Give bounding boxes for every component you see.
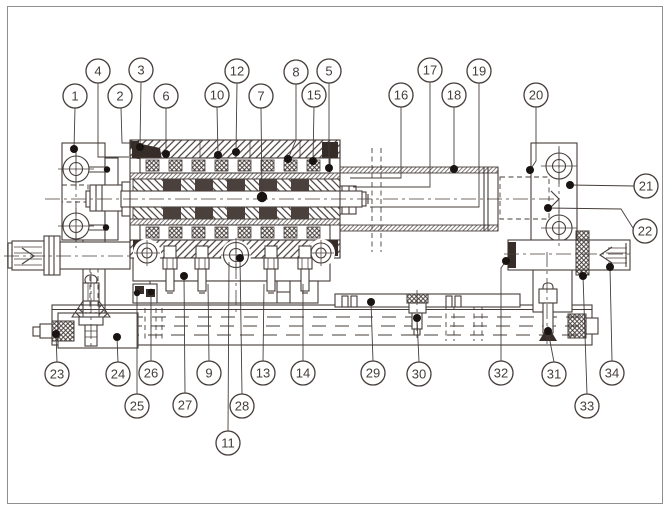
balloon-number-23: 23 (50, 367, 64, 382)
balloon-number-32: 32 (494, 366, 508, 381)
balloon-number-14: 14 (296, 366, 310, 381)
leader-dot-26 (148, 289, 154, 295)
balloon-number-29: 29 (366, 366, 380, 381)
rod-nut-left (90, 185, 122, 211)
leader-dot-31 (544, 327, 552, 335)
leader-dot-8 (284, 155, 292, 163)
balloon-number-5: 5 (325, 64, 332, 79)
balloon-number-13: 13 (256, 366, 270, 381)
leader-dot-30 (413, 314, 421, 322)
leader-dot-21 (566, 181, 574, 189)
balloon-number-1: 1 (71, 89, 78, 104)
leader-dot-18 (450, 165, 458, 173)
magnet-row-top (140, 158, 330, 173)
balloon-number-16: 16 (394, 88, 408, 103)
leader-dot-32 (502, 257, 510, 265)
seal-top-right (322, 142, 338, 158)
leader-dot-15 (309, 157, 317, 165)
balloon-number-15: 15 (307, 88, 321, 103)
leader-dot-24 (113, 333, 121, 341)
balloon-number-18: 18 (447, 88, 461, 103)
balloon-number-26: 26 (144, 366, 158, 381)
leader-dot-23 (52, 330, 60, 338)
leader-dot-12 (232, 148, 240, 156)
balloon-number-11: 11 (221, 436, 235, 451)
balloon-number-6: 6 (162, 89, 169, 104)
leader-dot-27 (180, 272, 188, 280)
balloon-number-24: 24 (111, 367, 125, 382)
leader-dot-5 (325, 164, 333, 172)
balloon-number-33: 33 (580, 399, 594, 414)
balloon-number-28: 28 (235, 399, 249, 414)
balloon-number-12: 12 (230, 64, 244, 79)
magnet-row-bottom (140, 225, 330, 240)
balloon-number-20: 20 (529, 88, 543, 103)
balloon-number-10: 10 (210, 88, 224, 103)
cylinder-body (121, 140, 362, 303)
balloon-number-25: 25 (130, 399, 144, 414)
balloon-number-30: 30 (412, 367, 426, 382)
leader-dot-1 (70, 145, 78, 153)
balloon-number-8: 8 (292, 65, 299, 80)
balloon-number-34: 34 (605, 366, 619, 381)
leader-dot-20 (526, 166, 534, 174)
balloon-number-7: 7 (257, 89, 264, 104)
balloon-number-19: 19 (472, 64, 486, 79)
leader-dot-6 (162, 150, 170, 158)
leader-dot-3 (136, 143, 144, 151)
leader-dot-10 (214, 151, 222, 159)
assembly-drawing-page: 1423610127815516171819202122232425262792… (0, 0, 670, 510)
left-buffer-rod (8, 236, 130, 275)
buffer-knurl-ring (576, 231, 589, 275)
slider-plate-lower (150, 281, 318, 303)
balloon-number-31: 31 (547, 367, 561, 382)
balloon-number-2: 2 (116, 89, 123, 104)
balloon-number-27: 27 (178, 398, 192, 413)
leader-dot-28 (236, 254, 244, 262)
balloon-number-21: 21 (639, 179, 653, 194)
balloon-number-4: 4 (94, 64, 101, 79)
leader-dot-22 (544, 204, 552, 212)
leader-dot-34 (606, 263, 614, 271)
leader-dot-29 (367, 298, 375, 306)
balloon-number-9: 9 (205, 366, 212, 381)
balloon-number-3: 3 (137, 63, 144, 78)
balloon-number-17: 17 (423, 63, 437, 78)
balloon-number-22: 22 (638, 224, 652, 239)
leader-dot-33 (579, 272, 587, 280)
leader-dot-7 (257, 192, 267, 202)
leader-dot-25 (134, 290, 140, 296)
right-knurled-knob (568, 314, 586, 338)
